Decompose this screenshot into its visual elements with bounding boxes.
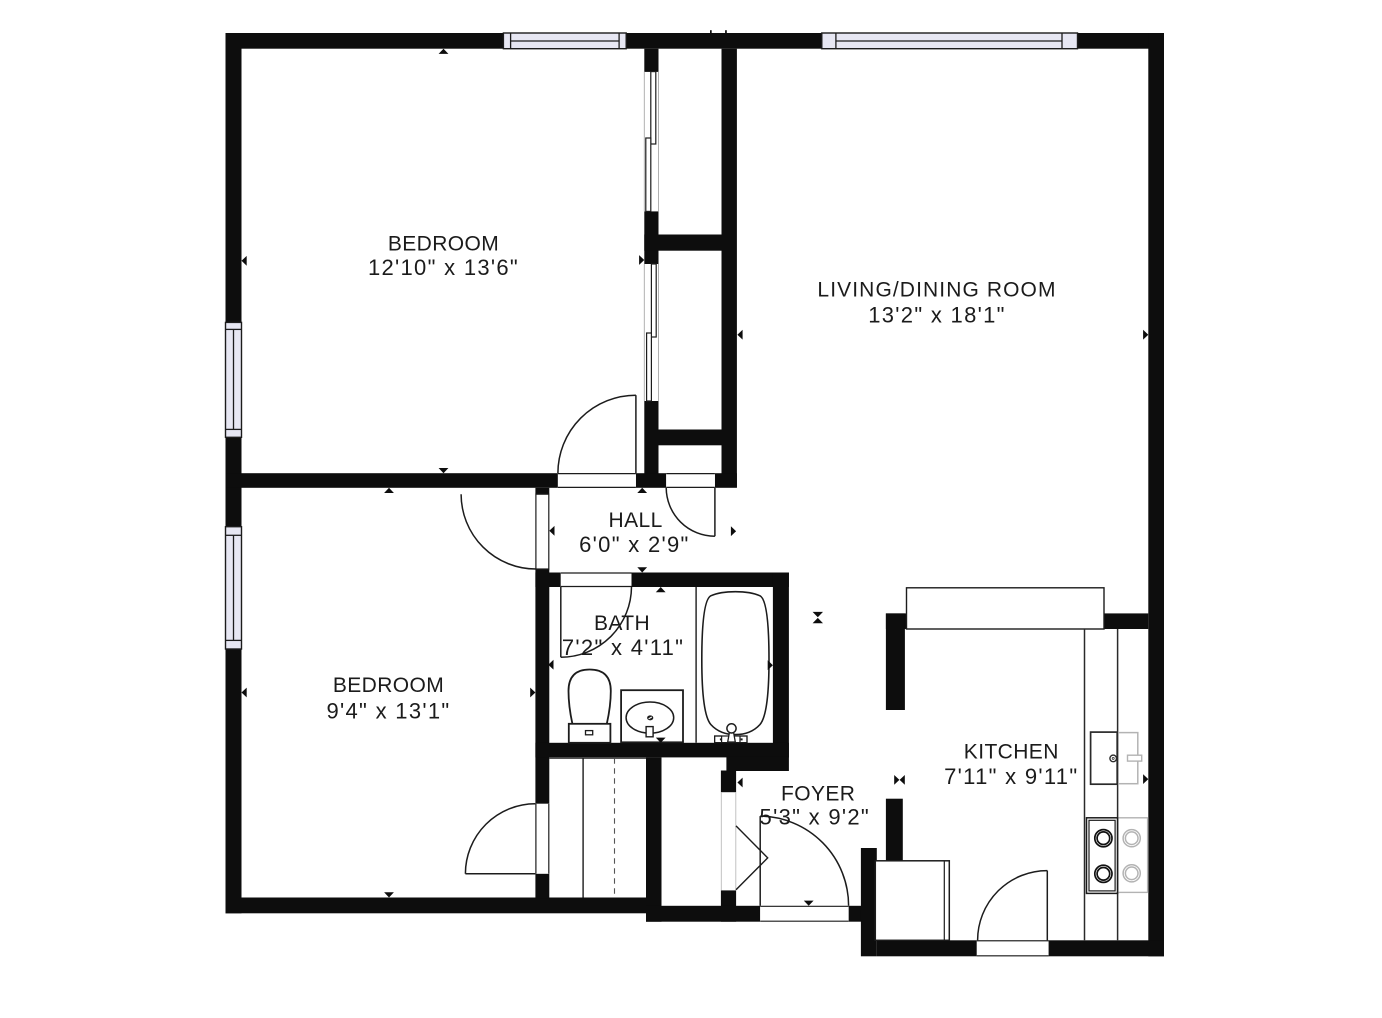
svg-text:9'4" x 13'1": 9'4" x 13'1" <box>326 698 450 723</box>
svg-text:FOYER: FOYER <box>781 782 855 805</box>
svg-text:13'2" x 18'1": 13'2" x 18'1" <box>868 302 1006 327</box>
svg-text:LIVING/DINING ROOM: LIVING/DINING ROOM <box>817 278 1056 301</box>
svg-text:BEDROOM: BEDROOM <box>388 233 499 256</box>
svg-text:HALL: HALL <box>609 509 663 532</box>
svg-text:12'10" x 13'6": 12'10" x 13'6" <box>368 255 519 280</box>
svg-text:7'11" x 9'11": 7'11" x 9'11" <box>944 764 1078 789</box>
svg-text:BEDROOM: BEDROOM <box>333 674 444 697</box>
svg-text:BATH: BATH <box>594 612 650 635</box>
svg-text:6'0" x 2'9": 6'0" x 2'9" <box>579 532 690 557</box>
svg-text:7'2" x 4'11": 7'2" x 4'11" <box>562 635 684 660</box>
svg-text:KITCHEN: KITCHEN <box>964 740 1059 763</box>
svg-text:5'3" x 9'2": 5'3" x 9'2" <box>760 805 871 830</box>
